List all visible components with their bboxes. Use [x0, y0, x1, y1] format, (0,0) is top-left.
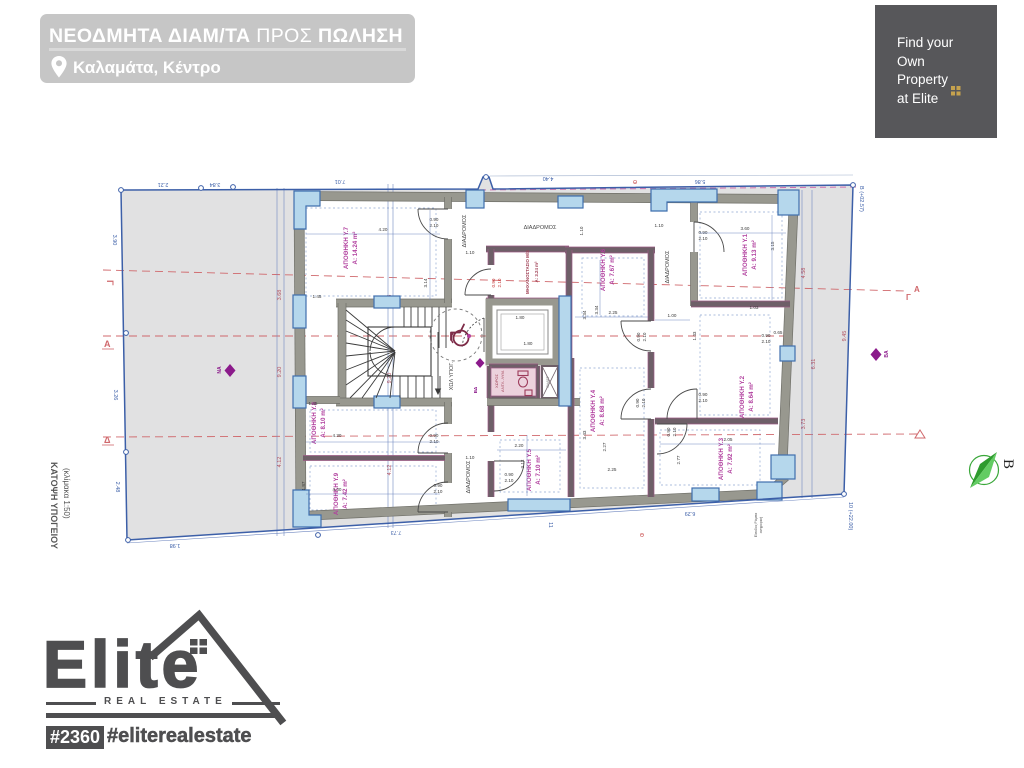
svg-text:ανηφορική: ανηφορική [759, 517, 763, 533]
svg-text:ΝΑ: ΝΑ [217, 366, 223, 374]
svg-text:ΑΠΟΘΗΚΗ Υ.9: ΑΠΟΘΗΚΗ Υ.9 [333, 472, 340, 515]
svg-text:3.26: 3.26 [112, 390, 118, 401]
svg-text:4.20: 4.20 [379, 227, 388, 232]
svg-text:4.12: 4.12 [277, 457, 283, 468]
svg-text:0.90: 0.90 [430, 433, 439, 438]
svg-text:3.34: 3.34 [582, 310, 587, 319]
svg-text:Α: 3.24 m²: Α: 3.24 m² [534, 261, 539, 283]
svg-text:ΔΙΑΔΡΟΜΟΣ: ΔΙΑΔΡΟΜΟΣ [524, 225, 557, 231]
svg-text:4.30: 4.30 [333, 433, 342, 438]
svg-text:Θ: Θ [640, 533, 644, 539]
svg-text:2.10: 2.10 [699, 236, 708, 241]
svg-text:1.10: 1.10 [466, 250, 475, 255]
svg-text:Β (+02.57): Β (+02.57) [858, 186, 864, 212]
svg-text:Θ: Θ [633, 178, 637, 184]
svg-text:2.10: 2.10 [699, 398, 708, 403]
svg-text:1.80: 1.80 [516, 315, 525, 320]
svg-text:11: 11 [547, 522, 553, 528]
svg-text:1.03: 1.03 [750, 305, 759, 310]
svg-text:Α: 9.13 m²: Α: 9.13 m² [751, 240, 758, 270]
svg-text:2.05: 2.05 [724, 437, 733, 442]
svg-text:7.01: 7.01 [335, 178, 346, 184]
svg-text:0.90: 0.90 [430, 217, 439, 222]
svg-text:Α: 14.24 m²: Α: 14.24 m² [352, 231, 359, 264]
svg-text:B: B [1000, 459, 1016, 469]
svg-text:1.45: 1.45 [313, 294, 322, 299]
svg-text:Δ: Δ [104, 435, 111, 445]
svg-text:3.14: 3.14 [423, 278, 428, 287]
svg-text:2.20: 2.20 [515, 443, 524, 448]
svg-text:2.10: 2.10 [642, 332, 647, 341]
svg-text:Α: Α [914, 285, 920, 294]
svg-text:0.90: 0.90 [635, 398, 640, 407]
svg-text:ΔΙΑΔΡΟΜΟΣ: ΔΙΑΔΡΟΜΟΣ [462, 214, 468, 247]
svg-text:ΜΗΧΑΝΟΣΤΑΣΙΟ M/S: ΜΗΧΑΝΟΣΤΑΣΙΟ M/S [525, 250, 530, 294]
svg-text:0.90: 0.90 [505, 472, 514, 477]
svg-text:Α: 8.68 m²: Α: 8.68 m² [599, 396, 606, 426]
svg-text:2.10: 2.10 [762, 339, 771, 344]
svg-text:1.45: 1.45 [309, 401, 318, 406]
svg-text:3.90: 3.90 [111, 235, 117, 246]
svg-text:ΒΔ: ΒΔ [473, 386, 478, 393]
svg-text:2.10: 2.10 [641, 398, 646, 407]
svg-text:3.73: 3.73 [801, 419, 807, 430]
svg-text:ΔΙΑΔΡΟΜΟΣ: ΔΙΑΔΡΟΜΟΣ [466, 460, 472, 493]
svg-text:ΚΑΤΟΨΗ ΥΠΟΓΕΙΟΥ: ΚΑΤΟΨΗ ΥΠΟΓΕΙΟΥ [49, 462, 59, 549]
svg-text:3.43: 3.43 [582, 430, 587, 439]
svg-text:Α: 8.10 m²: Α: 8.10 m² [320, 408, 327, 438]
svg-text:5.86: 5.86 [695, 178, 706, 184]
svg-text:2.10: 2.10 [430, 439, 439, 444]
svg-text:1.10: 1.10 [655, 223, 664, 228]
svg-text:3.12: 3.12 [520, 459, 525, 468]
svg-text:ΑΝΤΛ. ΛΥΜ.: ΑΝΤΛ. ΛΥΜ. [500, 370, 505, 392]
svg-text:1.43: 1.43 [692, 331, 697, 340]
svg-text:3.34: 3.34 [594, 305, 599, 314]
svg-text:ΑΠΟΘΗΚΗ Υ.8: ΑΠΟΘΗΚΗ Υ.8 [311, 401, 318, 444]
svg-text:Α: 8.64 m²: Α: 8.64 m² [748, 382, 755, 412]
svg-text:4.30: 4.30 [333, 487, 342, 492]
svg-text:1.10: 1.10 [466, 455, 475, 460]
svg-text:1.10: 1.10 [579, 226, 584, 235]
svg-text:1.00: 1.00 [668, 313, 677, 318]
svg-text:7.73: 7.73 [391, 529, 402, 535]
svg-text:ΒΑ: ΒΑ [884, 350, 890, 358]
svg-text:2.10: 2.10 [434, 489, 443, 494]
svg-text:1.87: 1.87 [301, 481, 306, 490]
svg-text:0.90: 0.90 [636, 332, 641, 341]
svg-text:0.90: 0.90 [434, 483, 443, 488]
svg-text:2.10: 2.10 [505, 478, 514, 483]
svg-text:Γ: Γ [906, 293, 911, 302]
svg-text:9.20: 9.20 [277, 367, 283, 378]
svg-text:3.60: 3.60 [741, 226, 750, 231]
svg-text:0.90: 0.90 [762, 333, 771, 338]
svg-text:Α: 7.67 m²: Α: 7.67 m² [609, 255, 616, 285]
svg-text:Α: Α [104, 339, 111, 349]
svg-text:Α: 7.92 m²: Α: 7.92 m² [727, 444, 734, 474]
svg-text:ΑΠΟΘΗΚΗ Υ.1: ΑΠΟΘΗΚΗ Υ.1 [742, 233, 749, 276]
svg-text:6.31: 6.31 [811, 359, 817, 370]
svg-text:2.48: 2.48 [114, 482, 120, 493]
svg-text:1.80: 1.80 [524, 341, 533, 346]
svg-text:ΔΙΑΔΡΟΜΟΣ: ΔΙΑΔΡΟΜΟΣ [665, 250, 671, 283]
svg-text:ΧΩΛ ΥΠΟΓ.: ΧΩΛ ΥΠΟΓ. [449, 361, 455, 390]
svg-text:2.25: 2.25 [609, 310, 618, 315]
svg-text:0.65: 0.65 [774, 330, 783, 335]
svg-text:SHAFT: SHAFT [546, 375, 550, 388]
svg-text:(κλίμακα 1:50): (κλίμακα 1:50) [62, 468, 71, 519]
svg-text:0.90: 0.90 [491, 278, 496, 287]
svg-text:2.25: 2.25 [608, 467, 617, 472]
svg-text:Γ: Γ [105, 280, 115, 286]
svg-text:2.27: 2.27 [602, 442, 607, 451]
svg-text:Α: 7.10 m²: Α: 7.10 m² [535, 455, 542, 485]
svg-text:9.45: 9.45 [842, 331, 848, 342]
svg-text:0.90: 0.90 [699, 230, 708, 235]
svg-text:1.98: 1.98 [170, 542, 181, 548]
svg-text:2.10: 2.10 [497, 278, 502, 287]
svg-text:ΧΩΡΟΣ: ΧΩΡΟΣ [494, 374, 499, 388]
svg-text:ΑΠΟΘΗΚΗ Υ.7: ΑΠΟΘΗΚΗ Υ.7 [343, 226, 350, 269]
svg-text:10 (+22.00): 10 (+22.00) [847, 502, 853, 530]
svg-text:0.90: 0.90 [699, 392, 708, 397]
svg-text:3.84: 3.84 [210, 181, 221, 187]
svg-text:Είσοδος Ράμπα: Είσοδος Ράμπα [754, 513, 758, 538]
svg-text:3.68: 3.68 [277, 290, 283, 301]
svg-text:2.10: 2.10 [430, 223, 439, 228]
svg-text:3.15: 3.15 [770, 241, 775, 250]
svg-text:2.77: 2.77 [676, 455, 681, 464]
svg-text:4.12: 4.12 [387, 465, 393, 476]
svg-text:4.58: 4.58 [801, 268, 807, 279]
svg-text:ΑΠΟΘΗΚΗ Υ.2: ΑΠΟΘΗΚΗ Υ.2 [739, 375, 746, 418]
svg-text:ΑΠΟΘΗΚΗ Υ.4: ΑΠΟΘΗΚΗ Υ.4 [590, 389, 597, 432]
svg-text:2.21: 2.21 [158, 181, 169, 187]
svg-text:ΑΠΟΘΗΚΗ Υ.6: ΑΠΟΘΗΚΗ Υ.6 [600, 248, 607, 291]
svg-text:2.10: 2.10 [672, 427, 677, 436]
svg-text:0.90: 0.90 [666, 427, 671, 436]
svg-text:6.29: 6.29 [685, 510, 696, 516]
